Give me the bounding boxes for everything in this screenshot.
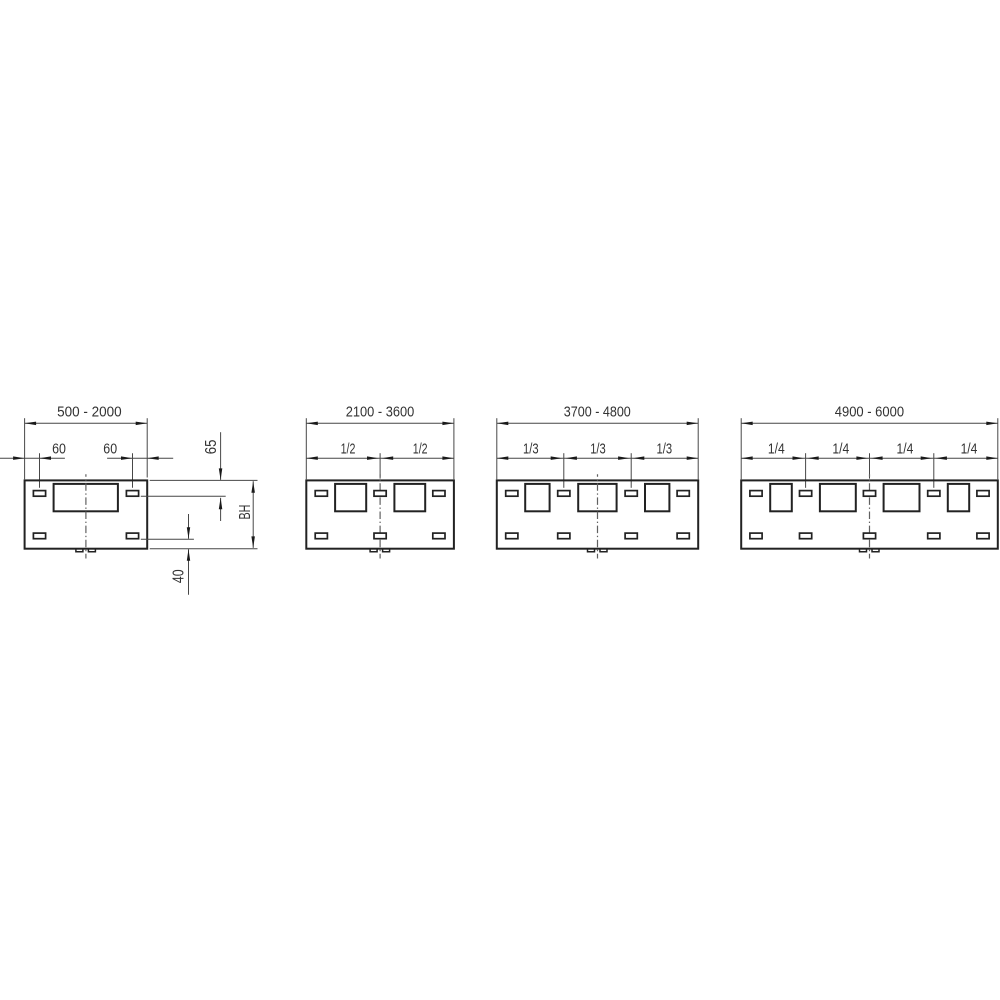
svg-text:60: 60: [52, 440, 66, 457]
svg-text:1/2: 1/2: [413, 440, 428, 457]
svg-text:1/3: 1/3: [523, 440, 539, 457]
svg-text:1/3: 1/3: [590, 440, 606, 457]
svg-text:4900 - 6000: 4900 - 6000: [835, 404, 904, 421]
svg-text:1/4: 1/4: [961, 440, 978, 457]
svg-text:3700 - 4800: 3700 - 4800: [564, 404, 631, 421]
svg-text:60: 60: [103, 440, 117, 457]
svg-text:BH: BH: [237, 505, 254, 520]
svg-text:65: 65: [203, 439, 220, 454]
svg-text:2100 - 3600: 2100 - 3600: [346, 404, 415, 421]
svg-text:1/2: 1/2: [341, 440, 356, 457]
svg-text:1/3: 1/3: [657, 440, 673, 457]
svg-text:40: 40: [171, 569, 188, 583]
svg-text:1/4: 1/4: [832, 440, 849, 457]
svg-text:500 - 2000: 500 - 2000: [57, 404, 122, 421]
svg-text:1/4: 1/4: [897, 440, 914, 457]
svg-text:1/4: 1/4: [768, 440, 785, 457]
